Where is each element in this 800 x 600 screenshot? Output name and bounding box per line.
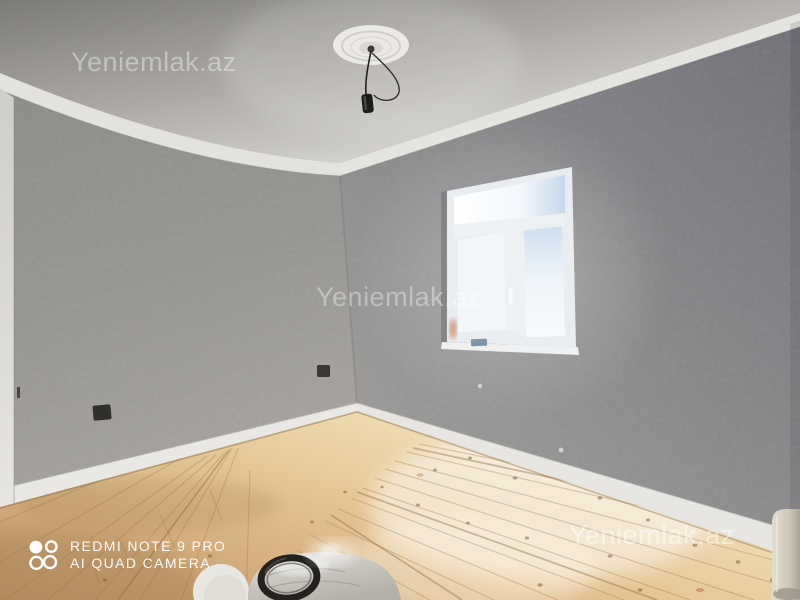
plaster-dot — [559, 448, 564, 453]
plaster-dot — [478, 384, 482, 388]
orange-reflection — [450, 319, 457, 339]
bulb-socket — [361, 93, 374, 113]
rolled-material — [772, 509, 800, 600]
dust-puff — [308, 539, 356, 565]
site-watermark-center: Yeniemlak.az — [316, 282, 482, 313]
power-outlet — [92, 404, 111, 421]
window — [441, 167, 579, 355]
camera-watermark: REDMI NOTE 9 PRO AI QUAD CAMERA — [27, 538, 226, 572]
right-casement-glass — [524, 224, 565, 337]
window-handle — [509, 288, 513, 305]
site-watermark-bottom-right: Yeniemlak.az — [569, 520, 735, 551]
site-watermark-top-left: Yeniemlak.az — [71, 47, 237, 78]
ceiling-medallion — [333, 25, 409, 65]
camera-watermark-line1: REDMI NOTE 9 PRO — [70, 538, 226, 555]
room-photo: Yeniemlak.az Yeniemlak.az Yeniemlak.az R… — [0, 0, 800, 600]
quad-camera-icon — [27, 538, 61, 572]
object-on-sill — [471, 339, 487, 347]
camera-watermark-line2: AI QUAD CAMERA — [70, 555, 226, 572]
window-reveal-shadow — [441, 191, 447, 343]
light-switch — [317, 365, 330, 377]
center-mullion — [504, 230, 526, 337]
small-mark — [17, 387, 20, 398]
